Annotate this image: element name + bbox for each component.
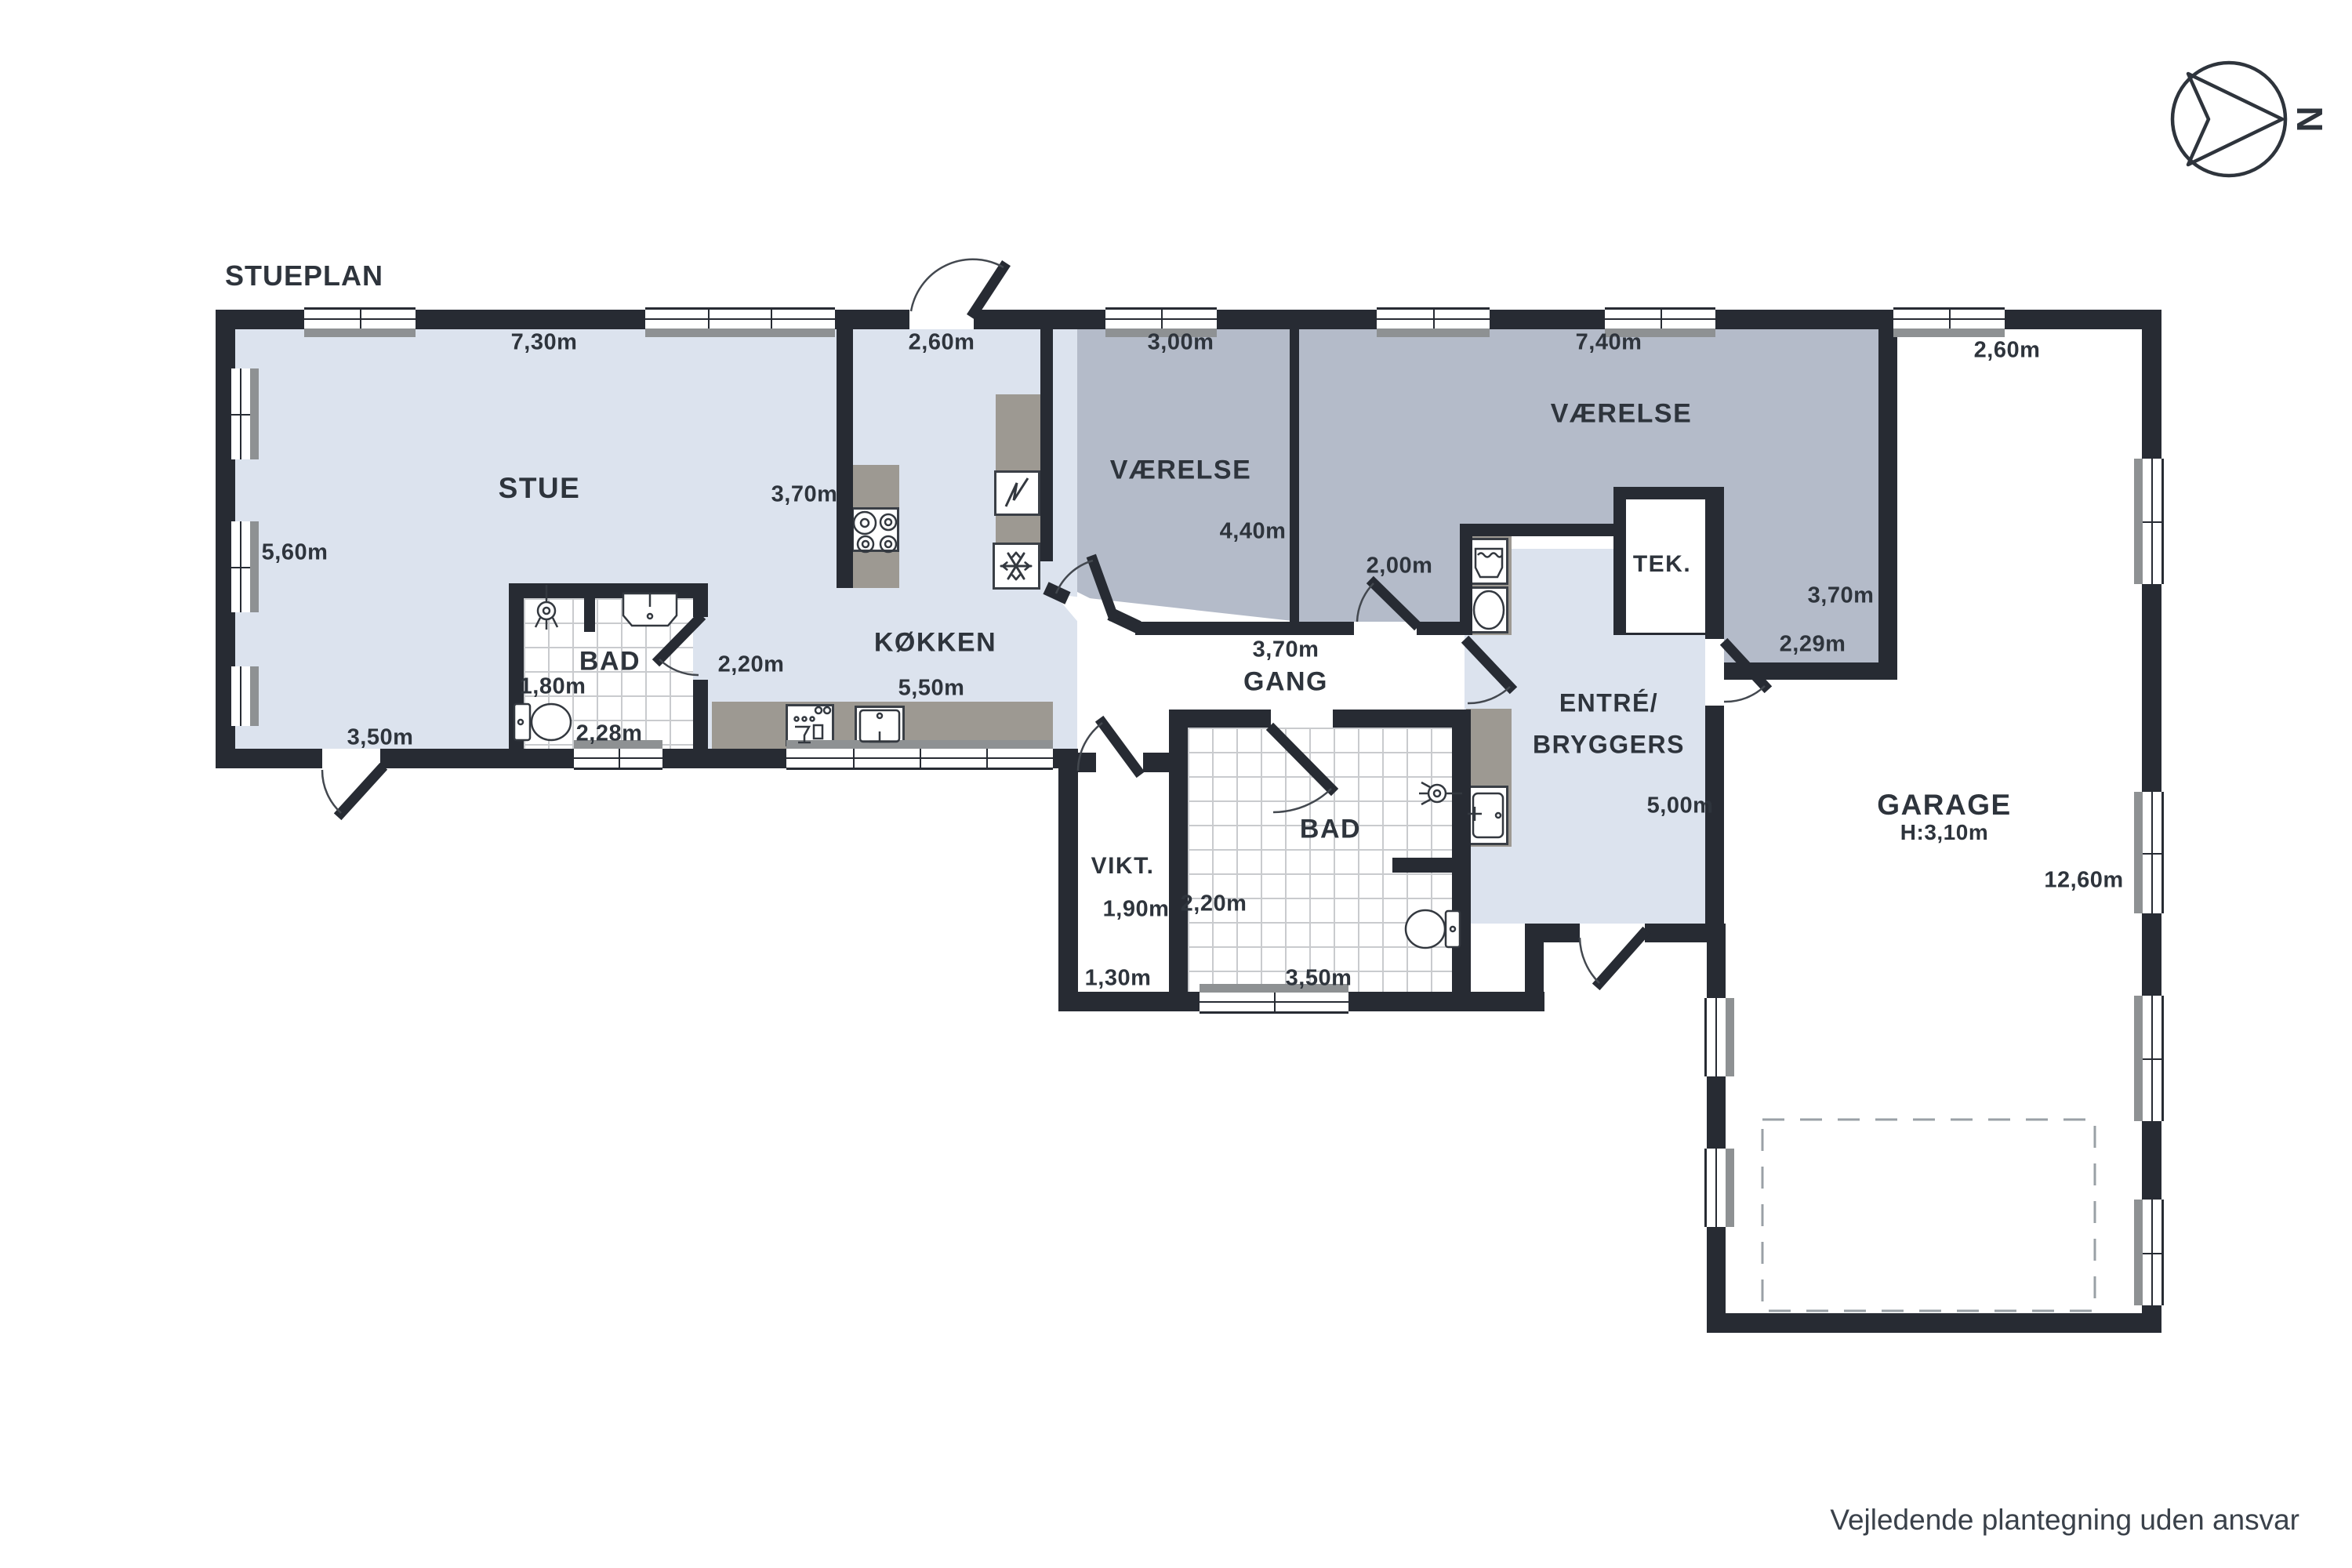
door-opening-entre-garage [1705,639,1724,706]
dim-v1-depth: 4,40m [1220,519,1287,545]
disclaimer-text: Vejledende plantegning uden ansvar [1830,1504,2299,1537]
page-title: STUEPLAN [225,260,383,292]
wall-v2-lobe-bottom [1724,662,1897,680]
room-label-gang: GANG [1243,667,1328,698]
wall-bad1-left [509,583,524,749]
dim-v2-width: 7,40m [1576,330,1642,356]
dim-vikt-width: 1,30m [1085,966,1152,992]
floorplan-canvas: N STUEPLAN Vejledende plantegning uden a… [0,0,2352,1568]
wall-bad2-east [1452,710,1471,992]
room-label-bad1: BAD [579,647,641,677]
wall-bad2-stub [1392,858,1452,873]
window [1704,1149,1728,1227]
compass-north-label: N [2289,106,2330,132]
wall-bad2-top-a [1188,710,1271,728]
window [1893,307,2005,331]
room-label-entre-1: ENTRÉ/ [1559,689,1658,718]
dim-kokken-depth: 3,70m [771,482,838,508]
door-opening-stue [322,749,380,768]
wall-bad2-west [1169,710,1188,992]
dim-bad1-width: 2,28m [576,721,643,747]
dim-bad1-depth: 1,80m [520,674,586,700]
dim-v2-depth: 3,70m [1808,583,1875,609]
compass-icon: N [2172,63,2330,176]
room-label-vaerelse2: VÆRELSE [1551,399,1693,430]
window [2140,459,2164,584]
wall-vaerelse1-west [1040,329,1053,561]
wall-bad1-top [509,583,708,598]
wall-vikt-top-b [1143,753,1169,772]
room-label-bad2: BAD [1300,815,1361,845]
dim-bad2-width: 3,50m [1286,966,1352,992]
window [574,746,662,770]
window [1105,307,1217,331]
oven [994,470,1040,516]
dim-nook-width: 2,60m [909,330,975,356]
wall-tek-west [1613,487,1626,635]
dim-stue-door: 3,50m [347,725,414,751]
room-label-entre-2: BRYGGERS [1533,731,1685,760]
dim-vikt-depth: 1,90m [1103,897,1170,923]
window [2140,996,2164,1121]
dim-garage-depth: 12,60m [2044,868,2123,894]
room-label-garage: GARAGE [1877,789,2011,822]
room-label-vaerelse1: VÆRELSE [1110,456,1252,486]
garage-height-label: H:3,10m [1900,820,1988,845]
window [2140,1200,2164,1305]
door-opening-nook [909,310,974,329]
dim-entre-depth: 5,00m [1647,793,1714,819]
freezer [993,543,1040,590]
dim-v1-width: 3,00m [1148,330,1214,356]
wall-vikt-top-a [1077,753,1096,772]
dim-gang-width: 3,70m [1253,637,1319,663]
window [229,368,252,459]
wall-bad1-right-a [693,583,708,617]
wall-bad2-top-b [1333,710,1454,728]
window [1605,307,1715,331]
dim-garage-top: 2,60m [1974,338,2041,364]
wall-bad1-stub [584,583,595,632]
washing-machine [1469,586,1508,633]
window [229,666,252,726]
wall-v1-v2-divider [1290,329,1299,622]
window [229,521,252,612]
room-label-vikt: VIKT. [1091,853,1155,880]
door-leaf-stue-exterior [341,770,380,813]
dim-stue-depth: 5,60m [262,540,328,566]
window [304,307,416,331]
dim-v2-lobe: 2,29m [1780,632,1846,658]
window [786,746,1053,770]
wall-vaerelse2-east [1878,329,1897,680]
wall-tek-north [1613,487,1705,499]
wall-vikt-west [1058,749,1078,1011]
wall-alcove-west [1460,524,1472,635]
entre-sink-box [1468,786,1508,845]
wall-vrooms-bottom-b [1417,622,1465,635]
room-label-kokken: KØKKEN [874,628,996,659]
dim-stue-width: 7,30m [511,330,578,356]
dim-bad2-depth: 2,20m [1181,891,1247,917]
window [2140,792,2164,913]
wall-vrooms-bottom-a [1135,622,1354,635]
room-label-stue: STUE [499,472,581,505]
dim-kokken-width: 5,50m [898,676,965,702]
room-label-tek: TEK. [1633,551,1691,578]
cooktop [851,507,899,552]
door-leaf-vikt [1102,723,1138,771]
door-leaf-nook-exterior [974,267,1004,313]
dim-bad1-door: 2,20m [718,652,785,678]
wall-entre-right-upper [1705,487,1724,639]
parking-area-dashed [1762,1120,2095,1311]
utility-sink-box [1469,538,1508,585]
window [1704,998,1728,1076]
window [645,307,835,331]
wall-alcove-top [1460,524,1626,536]
dim-v2-door: 2,00m [1367,554,1433,579]
wall-garage-left [1707,924,1726,1333]
window [1377,307,1490,331]
wall-bad1-right-b [693,680,708,749]
wall-kitchen-nook [837,329,853,588]
wall-garage-bottom [1718,1313,2161,1333]
door-opening-entre-exterior [1580,924,1645,942]
window [1200,990,1348,1014]
